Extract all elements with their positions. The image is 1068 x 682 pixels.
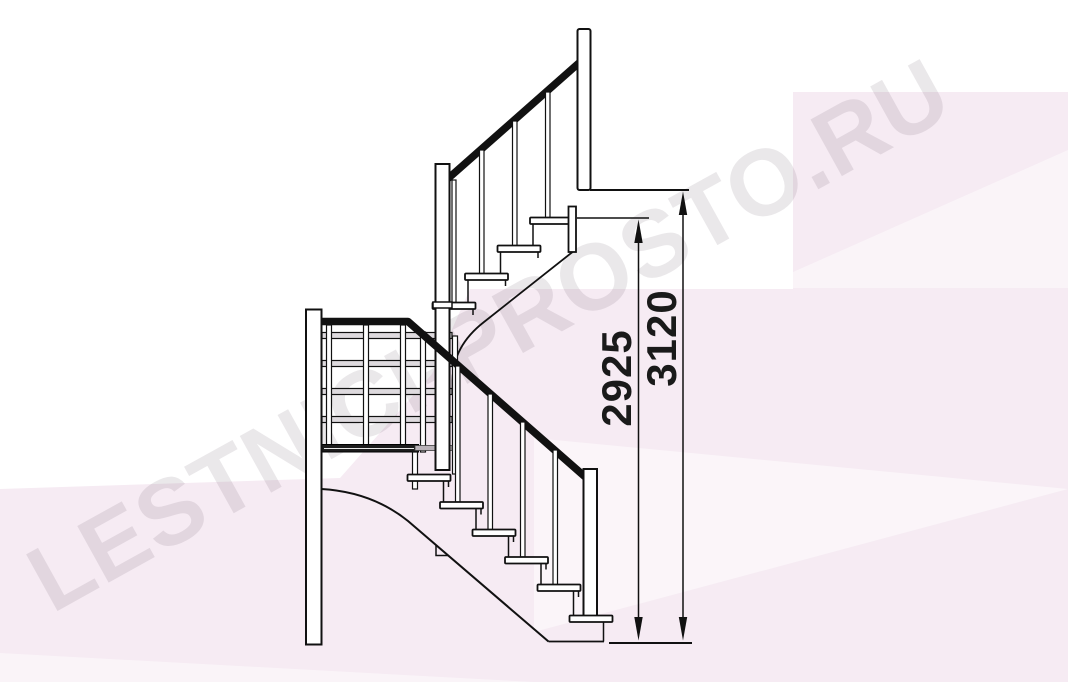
lower-baluster (456, 366, 461, 502)
stair-tread (408, 475, 451, 482)
stair-tread (538, 585, 581, 592)
stair-tread (570, 616, 613, 623)
dimension-label-total: 3120 (638, 289, 685, 386)
landing-support-leg (413, 452, 418, 489)
winder-rail (322, 333, 452, 339)
winder-rail (322, 417, 452, 423)
top-step-trim-board (569, 207, 577, 253)
upper-baluster (513, 121, 518, 246)
winder-baluster (421, 332, 426, 452)
mid-newel-post (436, 164, 450, 470)
stair-tread (505, 557, 548, 564)
stair-tread (473, 530, 516, 537)
staircase-elevation-drawing: LESTNICI-PROSTO.RU (0, 0, 1068, 682)
stair-tread (465, 274, 508, 281)
top-newel-post (578, 29, 591, 190)
upper-baluster (480, 150, 485, 274)
mid-post-collar (433, 302, 452, 308)
lower-baluster (553, 450, 558, 585)
upper-baluster (546, 92, 551, 218)
winder-rail (322, 389, 452, 395)
winder-rail (322, 361, 452, 367)
stair-tread (530, 218, 573, 225)
dimension-label-partial: 2925 (593, 329, 640, 426)
stair-tread (440, 502, 483, 509)
drawing-canvas: LESTNICI-PROSTO.RU (0, 0, 1068, 682)
winder-baluster (401, 325, 406, 445)
winder-baluster (327, 325, 332, 445)
stair-tread (498, 246, 541, 253)
upper-baluster (452, 180, 456, 303)
bottom-newel-post (584, 469, 598, 621)
winder-baluster (364, 325, 369, 445)
lower-baluster (521, 422, 526, 557)
left-newel-post (306, 310, 322, 645)
lower-baluster (488, 394, 493, 530)
